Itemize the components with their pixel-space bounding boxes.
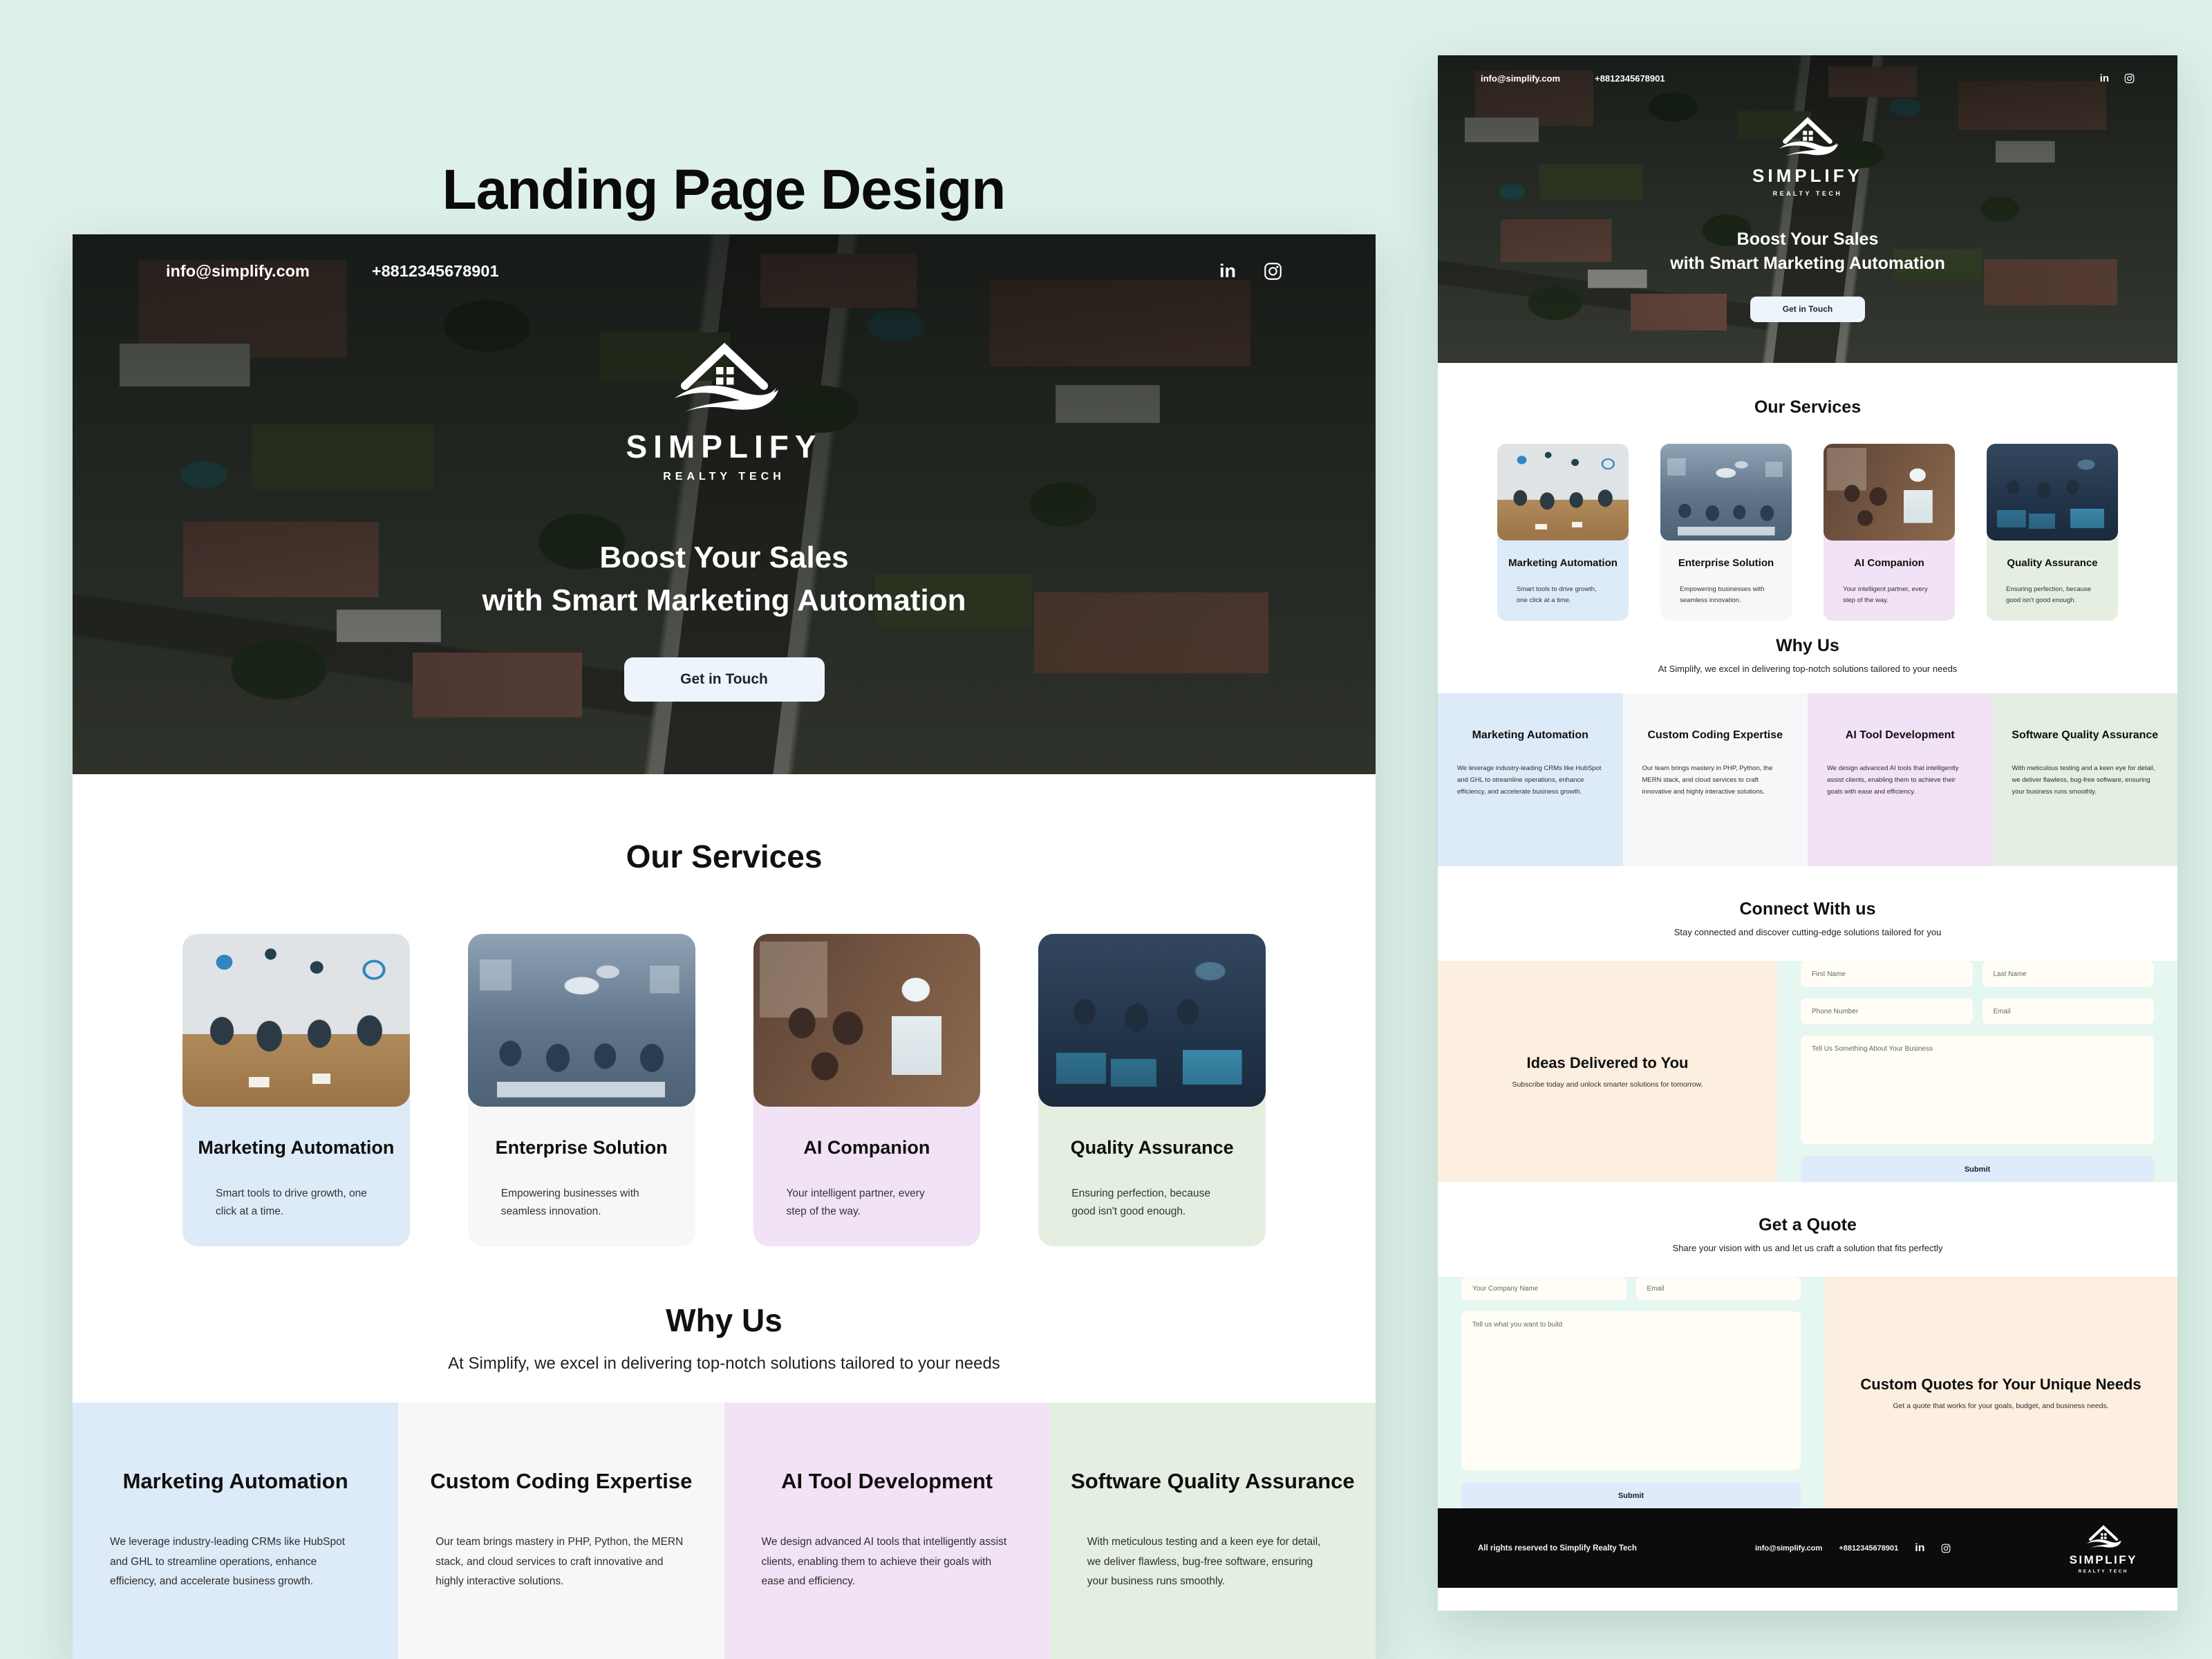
footer-brand-logo: SIMPLIFY REALTY TECH <box>2070 1522 2137 1574</box>
hero-headline-line1: Boost Your Sales <box>1438 227 2177 252</box>
service-cards: Marketing Automation Smart tools to driv… <box>73 934 1376 1246</box>
why-us-column-title: Custom Coding Expertise <box>398 1403 724 1494</box>
house-logo-icon <box>2082 1522 2125 1553</box>
company-name-input[interactable] <box>1461 1277 1627 1300</box>
why-us-column-ai-tool: AI Tool Development We design advanced A… <box>1808 693 1993 866</box>
why-us-column-title: Software Quality Assurance <box>1050 1403 1376 1494</box>
why-us-column-desc: We leverage industry-leading CRMs like H… <box>1438 762 1623 798</box>
connect-panel-subtitle: Subscribe today and unlock smarter solut… <box>1484 1080 1730 1089</box>
service-card-desc: Your intelligent partner, every step of … <box>753 1185 981 1220</box>
get-in-touch-button[interactable]: Get in Touch <box>624 657 825 702</box>
hero-section: info@simplify.com +8812345678901 in <box>1438 55 2177 363</box>
hero-topbar: info@simplify.com +8812345678901 in <box>73 262 1376 281</box>
hero-headline-line2: with Smart Marketing Automation <box>73 579 1376 622</box>
why-us-column-title: AI Tool Development <box>1808 693 1993 742</box>
service-card-title: Marketing Automation <box>1497 557 1629 569</box>
linkedin-icon[interactable]: in <box>1915 1543 1924 1554</box>
service-image-quality-assurance <box>1038 934 1266 1107</box>
connect-panel-title: Ideas Delivered to You <box>1499 1054 1716 1072</box>
design-canvas: Landing Page Design info@simplify.com +8… <box>0 0 2212 1659</box>
brand-tagline: REALTY TECH <box>1773 190 1843 197</box>
why-us-section: Why Us At Simplify, we excel in deliveri… <box>73 1246 1376 1659</box>
why-us-column-software-qa: Software Quality Assurance With meticulo… <box>1050 1403 1376 1659</box>
service-cards: Marketing Automation Smart tools to driv… <box>1438 444 2177 621</box>
service-image-marketing-automation <box>1497 444 1629 541</box>
service-card-title: Quality Assurance <box>1038 1137 1266 1159</box>
service-card-desc: Ensuring perfection, because good isn't … <box>1038 1185 1266 1220</box>
service-card-ai-companion[interactable]: AI Companion Your intelligent partner, e… <box>1824 444 1955 621</box>
connect-subtitle: Stay connected and discover cutting-edge… <box>1438 927 2177 937</box>
service-card-desc: Empowering businesses with seamless inno… <box>1660 584 1792 606</box>
service-card-title: Marketing Automation <box>182 1137 410 1159</box>
get-in-touch-button[interactable]: Get in Touch <box>1750 297 1865 322</box>
quote-section: Get a Quote Share your vision with us an… <box>1438 1182 2177 1508</box>
service-card-title: Enterprise Solution <box>468 1137 695 1159</box>
service-card-marketing-automation[interactable]: Marketing Automation Smart tools to driv… <box>182 934 410 1246</box>
service-card-desc: Smart tools to drive growth, one click a… <box>182 1185 410 1220</box>
why-us-subtitle: At Simplify, we excel in delivering top-… <box>73 1354 1376 1374</box>
linkedin-icon[interactable]: in <box>1219 262 1236 281</box>
quote-subtitle: Share your vision with us and let us cra… <box>1438 1243 2177 1253</box>
footer-email[interactable]: info@simplify.com <box>1755 1544 1822 1553</box>
copyright-text: All rights reserved to Simplify Realty T… <box>1478 1544 1637 1553</box>
house-logo-icon <box>1772 112 1844 164</box>
why-us-column-desc: With meticulous testing and a keen eye f… <box>1050 1533 1376 1592</box>
why-us-columns: Marketing Automation We leverage industr… <box>1438 693 2177 866</box>
quote-band: Submit Custom Quotes for Your Unique Nee… <box>1438 1277 2177 1508</box>
first-name-input[interactable] <box>1801 961 1973 987</box>
service-card-desc: Your intelligent partner, every step of … <box>1824 584 1955 606</box>
contact-info: info@simplify.com +8812345678901 <box>1481 73 1665 84</box>
footer-phone[interactable]: +8812345678901 <box>1839 1544 1898 1553</box>
last-name-input[interactable] <box>1983 961 2155 987</box>
why-us-subtitle: At Simplify, we excel in delivering top-… <box>1438 664 2177 674</box>
service-image-ai-companion <box>753 934 981 1107</box>
page-title: Landing Page Design <box>442 158 1006 223</box>
hero-topbar: info@simplify.com +8812345678901 in <box>1438 73 2177 84</box>
service-card-marketing-automation[interactable]: Marketing Automation Smart tools to driv… <box>1497 444 1629 621</box>
hero-headline-line2: with Smart Marketing Automation <box>1438 252 2177 276</box>
contact-info: info@simplify.com +8812345678901 <box>166 262 499 281</box>
connect-promo-panel: Ideas Delivered to You Subscribe today a… <box>1438 961 1777 1182</box>
connect-heading: Connect With us <box>1438 899 2177 919</box>
email-input[interactable] <box>1636 1277 1801 1300</box>
brand-name: SIMPLIFY <box>2070 1553 2137 1567</box>
quote-promo-panel: Custom Quotes for Your Unique Needs Get … <box>1824 1277 2177 1508</box>
why-us-column-title: AI Tool Development <box>724 1403 1050 1494</box>
social-links: in <box>2100 73 2135 84</box>
service-card-enterprise-solution[interactable]: Enterprise Solution Empowering businesse… <box>468 934 695 1246</box>
quote-panel-subtitle: Get a quote that works for your goals, b… <box>1865 1402 2136 1410</box>
service-card-desc: Smart tools to drive growth, one click a… <box>1497 584 1629 606</box>
hero-headline-line1: Boost Your Sales <box>73 536 1376 579</box>
service-image-enterprise-solution <box>468 934 695 1107</box>
quote-submit-button[interactable]: Submit <box>1461 1483 1801 1508</box>
why-us-column-software-qa: Software Quality Assurance With meticulo… <box>1993 693 2178 866</box>
services-section: Our Services Marketing Automation Smart … <box>1438 363 2177 621</box>
connect-band: Ideas Delivered to You Subscribe today a… <box>1438 961 2177 1182</box>
phone-number-input[interactable] <box>1801 998 1973 1024</box>
service-card-title: AI Companion <box>1824 557 1955 569</box>
services-section: Our Services Marketing Automation Smart … <box>73 774 1376 1246</box>
service-card-quality-assurance[interactable]: Quality Assurance Ensuring perfection, b… <box>1987 444 2118 621</box>
full-page-mockup: info@simplify.com +8812345678901 in <box>1438 55 2177 1611</box>
instagram-icon[interactable] <box>1264 262 1282 281</box>
service-image-enterprise-solution <box>1660 444 1792 541</box>
footer: All rights reserved to Simplify Realty T… <box>1438 1508 2177 1588</box>
service-image-ai-companion <box>1824 444 1955 541</box>
instagram-icon[interactable] <box>1941 1544 1951 1553</box>
services-heading: Our Services <box>73 838 1376 875</box>
connect-form: Submit <box>1777 961 2177 1182</box>
why-us-heading: Why Us <box>73 1302 1376 1339</box>
service-card-desc: Empowering businesses with seamless inno… <box>468 1185 695 1220</box>
why-us-columns: Marketing Automation We leverage industr… <box>73 1403 1376 1659</box>
why-us-column-ai-tool: AI Tool Development We design advanced A… <box>724 1403 1050 1659</box>
instagram-icon[interactable] <box>2124 73 2135 84</box>
brand-tagline: REALTY TECH <box>663 471 785 483</box>
why-us-heading: Why Us <box>1438 636 2177 656</box>
why-us-column-title: Marketing Automation <box>73 1403 398 1494</box>
footer-contact: info@simplify.com +8812345678901 in <box>1755 1543 1951 1554</box>
hero-section: info@simplify.com +8812345678901 in <box>73 234 1376 774</box>
email-input[interactable] <box>1983 998 2155 1024</box>
why-us-column-custom-coding: Custom Coding Expertise Our team brings … <box>398 1403 724 1659</box>
service-card-title: Quality Assurance <box>1987 557 2118 569</box>
business-message-textarea[interactable] <box>1801 1035 2154 1144</box>
service-image-quality-assurance <box>1987 444 2118 541</box>
why-us-column-desc: Our team brings mastery in PHP, Python, … <box>398 1533 724 1592</box>
why-us-column-desc: We leverage industry-leading CRMs like H… <box>73 1533 398 1592</box>
brand-name: SIMPLIFY <box>1752 165 1863 187</box>
brand-logo: SIMPLIFY REALTY TECH <box>1438 112 2177 197</box>
why-us-column-desc: We design advanced AI tools that intelli… <box>1808 762 1993 798</box>
why-us-column-title: Custom Coding Expertise <box>1623 693 1808 742</box>
service-card-quality-assurance[interactable]: Quality Assurance Ensuring perfection, b… <box>1038 934 1266 1246</box>
brand-logo: SIMPLIFY REALTY TECH <box>73 334 1376 483</box>
social-links: in <box>1219 262 1282 281</box>
service-card-title: AI Companion <box>753 1137 981 1159</box>
brand-name: SIMPLIFY <box>626 428 822 465</box>
brand-tagline: REALTY TECH <box>2079 1569 2128 1574</box>
connect-section: Connect With us Stay connected and disco… <box>1438 866 2177 1182</box>
header-email[interactable]: info@simplify.com <box>1481 73 1560 84</box>
house-logo-icon <box>661 334 788 425</box>
why-us-column-title: Marketing Automation <box>1438 693 1623 742</box>
linkedin-icon[interactable]: in <box>2100 73 2109 84</box>
why-us-column-desc: Our team brings mastery in PHP, Python, … <box>1623 762 1808 798</box>
hero-headline: Boost Your Sales with Smart Marketing Au… <box>1438 227 2177 276</box>
header-email[interactable]: info@simplify.com <box>166 262 310 281</box>
service-card-desc: Ensuring perfection, because good isn't … <box>1987 584 2118 606</box>
service-image-marketing-automation <box>182 934 410 1107</box>
connect-submit-button[interactable]: Submit <box>1801 1156 2154 1182</box>
why-us-column-custom-coding: Custom Coding Expertise Our team brings … <box>1623 693 1808 866</box>
why-us-column-desc: With meticulous testing and a keen eye f… <box>1993 762 2178 798</box>
quote-panel-title: Custom Quotes for Your Unique Needs <box>1833 1376 2168 1394</box>
why-us-section: Why Us At Simplify, we excel in deliveri… <box>1438 621 2177 866</box>
quote-form: Submit <box>1438 1277 1824 1508</box>
why-us-column-marketing-automation: Marketing Automation We leverage industr… <box>73 1403 398 1659</box>
why-us-column-title: Software Quality Assurance <box>1993 693 2178 742</box>
hero-headline: Boost Your Sales with Smart Marketing Au… <box>73 536 1376 622</box>
project-message-textarea[interactable] <box>1461 1311 1801 1470</box>
quote-heading: Get a Quote <box>1438 1215 2177 1235</box>
service-card-title: Enterprise Solution <box>1660 557 1792 569</box>
desktop-mockup: info@simplify.com +8812345678901 in <box>73 234 1376 1659</box>
header-phone[interactable]: +8812345678901 <box>1595 73 1665 84</box>
why-us-column-marketing-automation: Marketing Automation We leverage industr… <box>1438 693 1623 866</box>
why-us-column-desc: We design advanced AI tools that intelli… <box>724 1533 1050 1592</box>
services-heading: Our Services <box>1438 397 2177 418</box>
service-card-ai-companion[interactable]: AI Companion Your intelligent partner, e… <box>753 934 981 1246</box>
service-card-enterprise-solution[interactable]: Enterprise Solution Empowering businesse… <box>1660 444 1792 621</box>
header-phone[interactable]: +8812345678901 <box>372 262 499 281</box>
